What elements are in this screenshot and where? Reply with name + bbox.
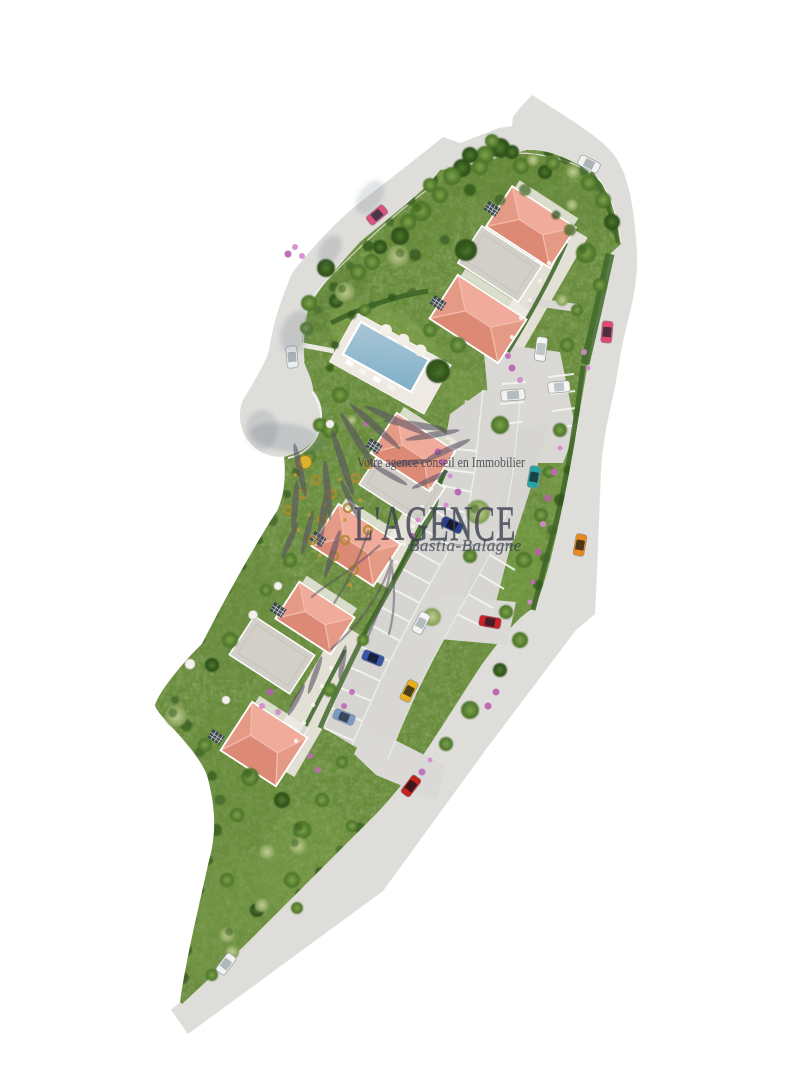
svg-text:Votre agence conseil en Immobi: Votre agence conseil en Immobilier <box>357 455 525 471</box>
